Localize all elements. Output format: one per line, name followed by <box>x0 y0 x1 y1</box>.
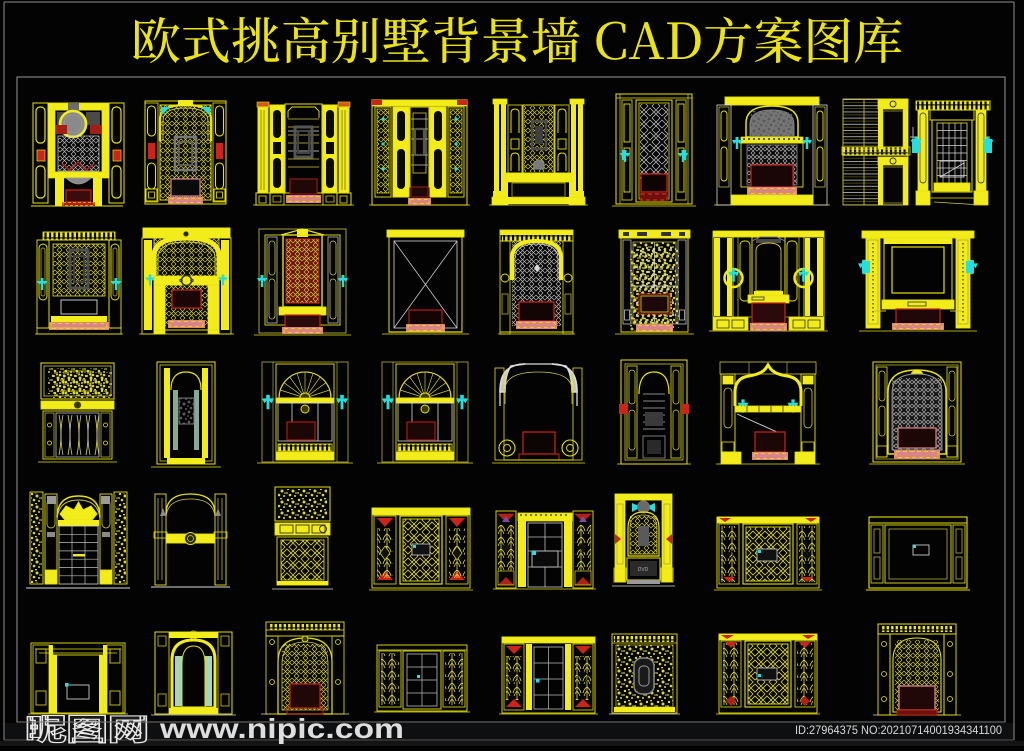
svg-text:ID:27964375 NO:202107140019343: ID:27964375 NO:20210714001934341100 <box>795 723 1002 737</box>
svg-text:www.nipic.com: www.nipic.com <box>159 713 404 744</box>
svg-text:DVD: DVD <box>638 567 649 573</box>
